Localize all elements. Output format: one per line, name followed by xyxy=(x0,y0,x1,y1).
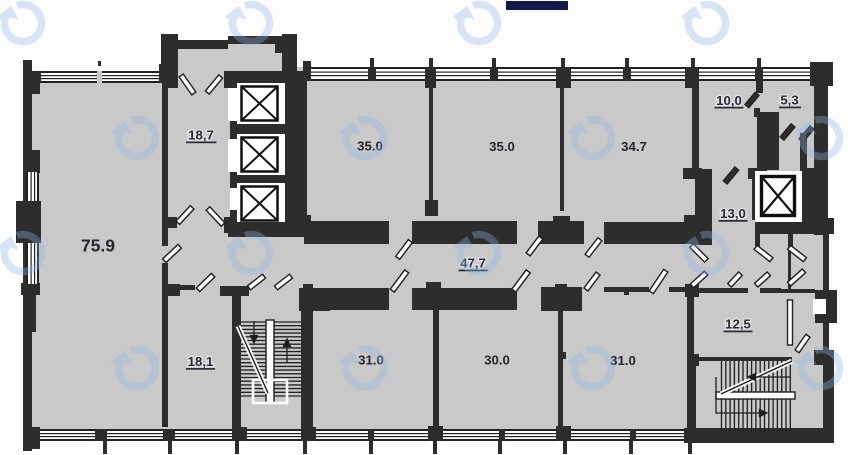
svg-text:75.9: 75.9 xyxy=(81,236,115,256)
svg-text:10,0: 10,0 xyxy=(716,93,742,108)
svg-text:12,5: 12,5 xyxy=(725,317,751,332)
svg-text:18,1: 18,1 xyxy=(188,354,214,369)
svg-text:34.7: 34.7 xyxy=(621,139,647,154)
svg-text:5,3: 5,3 xyxy=(780,93,798,108)
svg-text:18,7: 18,7 xyxy=(188,128,214,143)
svg-text:35.0: 35.0 xyxy=(489,139,515,154)
svg-text:30.0: 30.0 xyxy=(484,353,510,368)
svg-text:13,0: 13,0 xyxy=(720,206,746,221)
